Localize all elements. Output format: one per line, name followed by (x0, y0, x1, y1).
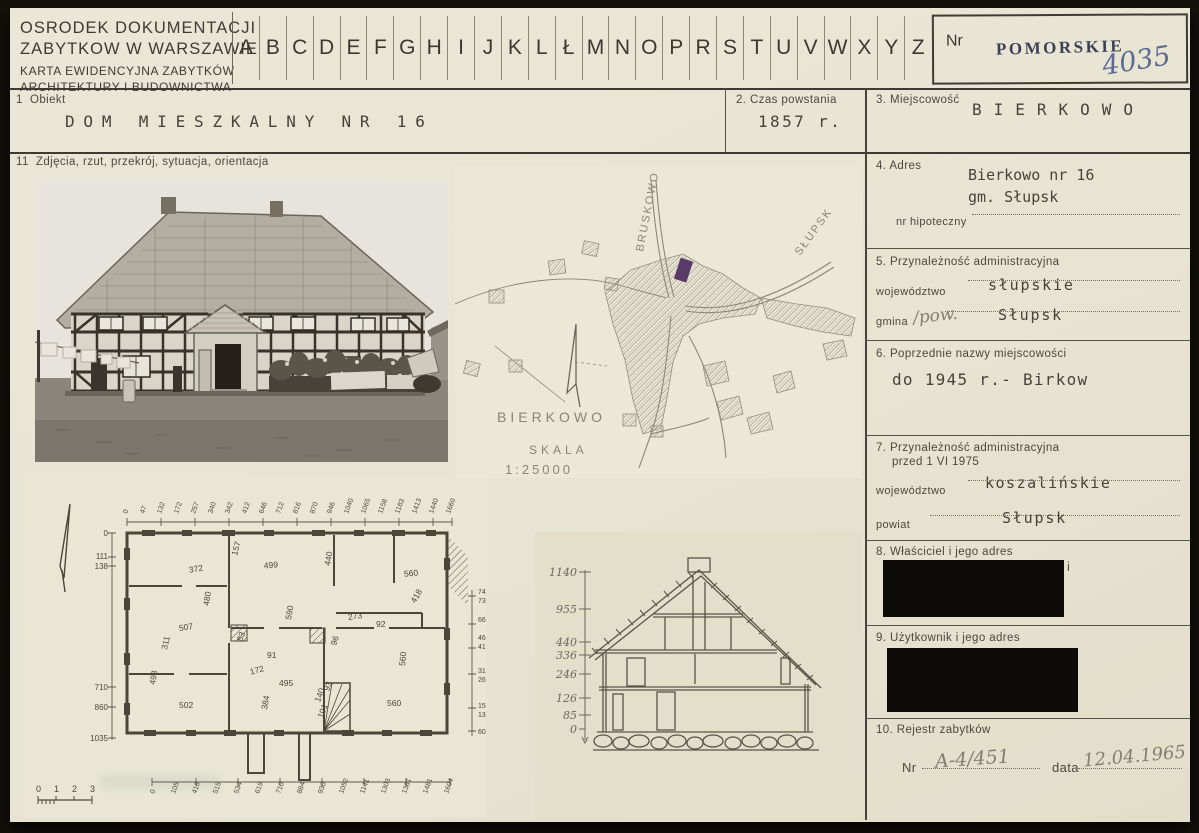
field4-label: 4. Adres (876, 160, 921, 172)
plan-right-dim: 416 (478, 644, 486, 651)
svg-text:955: 955 (556, 603, 577, 616)
alphabet-cell: Z (905, 16, 931, 80)
field5-label: 5. Przynależność administracyjna (876, 256, 1059, 268)
plan-right-dim: 736 (478, 598, 486, 605)
evidence-card: OSRODEK DOKUMENTACJI ZABYTKOW W WARSZAWI… (10, 8, 1190, 822)
alphabet-cell: G (394, 16, 421, 80)
alphabet-cell: O (636, 16, 663, 80)
alphabet-cell: N (609, 16, 636, 80)
field6-value: do 1945 r.- Birkow (892, 370, 1088, 389)
field8-redaction-box (883, 560, 1064, 617)
alphabet-cell: L (529, 16, 556, 80)
card-type-line-2: ARCHITEKTURY I BUDOWNICTWA (20, 79, 258, 95)
org-header: OSRODEK DOKUMENTACJI ZABYTKOW W WARSZAWI… (20, 18, 258, 95)
svg-text:480: 480 (201, 591, 213, 607)
field8-label: 8. Właściciel i jego adres (876, 546, 1013, 558)
photo-house (35, 180, 448, 462)
field10-nr-label: Nr (902, 760, 917, 775)
field10-date-value-handwritten: 12.04.1965 (1082, 742, 1187, 772)
plan-right-dim: 668 (478, 617, 486, 624)
field5-row2-handwritten: /pow. (912, 304, 959, 329)
plan-left-dim: 0 (104, 529, 109, 538)
field5-row1-value: słupskie (988, 276, 1075, 294)
alphabet-cell: Ł (556, 16, 583, 80)
org-line-2: ZABYTKOW W WARSZAWIE (20, 39, 258, 60)
field9-label: 9. Użytkownik i jego adres (876, 632, 1020, 644)
map-village-label: BIERKOWO (497, 409, 606, 425)
field8-remnant-text: i (1067, 559, 1070, 574)
svg-text:560: 560 (397, 651, 408, 666)
svg-text:0: 0 (36, 784, 41, 794)
alphabet-cell: H (421, 16, 448, 80)
situation-map: BRUSKOWO SŁUPSK BIERKOWO SKALA 1:25000 (455, 166, 862, 478)
svg-text:85: 85 (563, 709, 577, 722)
alphabet-cell: A (233, 16, 260, 80)
svg-text:560: 560 (387, 698, 401, 708)
alphabet-cell: W (825, 16, 852, 80)
field9-redaction-box (887, 648, 1078, 712)
field4-value-line2: gm. Słupsk (968, 188, 1058, 206)
alphabet-cell: R (690, 16, 717, 80)
alphabet-cell: X (851, 16, 878, 80)
alphabet-cell: P (663, 16, 690, 80)
plan-right-dim: 154 (478, 703, 486, 710)
svg-text:92: 92 (376, 619, 386, 629)
field1-label: 1 Obiekt (16, 94, 66, 106)
field7-label-line1: 7. Przynależność administracyjna (876, 442, 1059, 454)
svg-text:0: 0 (570, 723, 577, 736)
svg-text:2: 2 (72, 784, 77, 794)
field7-row2-value: Słupsk (1002, 509, 1067, 527)
alphabet-cell: I (448, 16, 475, 80)
svg-text:1140: 1140 (549, 566, 577, 579)
alphabet-cell: M (583, 16, 610, 80)
svg-text:336: 336 (556, 649, 577, 662)
alphabet-cell: E (341, 16, 368, 80)
card-type-line-1: KARTA EWIDENCYJNA ZABYTKÓW (20, 63, 258, 79)
field1-value: DOM MIESZKALNY NR 16 (65, 112, 434, 131)
field7-row1-label: województwo (876, 485, 946, 497)
plan-chimney-2 (310, 628, 325, 643)
alphabet-cell: J (475, 16, 502, 80)
plan-right-dim: 132 (478, 712, 486, 719)
svg-text:3: 3 (90, 784, 95, 794)
floor-plan: 0 111 138 710 860 1035 741 736 668 468 4… (24, 478, 486, 818)
svg-text:499: 499 (263, 559, 278, 570)
door-opening (215, 344, 241, 392)
field2-value: 1857 r. (758, 112, 842, 131)
plan-left-dim: 710 (95, 683, 109, 692)
alphabet-cell: Y (878, 16, 905, 80)
svg-text:91: 91 (267, 650, 277, 660)
scanned-card-page: { "header": { "org_line1": "OSRODEK DOKU… (0, 0, 1199, 833)
svg-text:1: 1 (54, 784, 59, 794)
map-scale-value: 1:25000 (505, 462, 573, 477)
alphabet-cell: S (717, 16, 744, 80)
plan-left-dim: 1035 (90, 734, 108, 743)
svg-text:246: 246 (555, 668, 577, 681)
svg-text:440: 440 (555, 636, 577, 649)
field5-row2-value: Słupsk (998, 306, 1063, 324)
field5-row1-label: województwo (876, 286, 946, 298)
plan-left-dim: 860 (95, 703, 109, 712)
svg-text:495: 495 (279, 678, 293, 688)
plan-right-dim: 741 (478, 589, 486, 596)
field6-label: 6. Poprzednie nazwy miejscowości (876, 348, 1067, 360)
field5-row2-label: gmina (876, 316, 908, 328)
field7-label-line2: przed 1 VI 1975 (892, 456, 979, 468)
alphabet-cell: B (260, 16, 287, 80)
nr-label: Nr (946, 33, 963, 51)
field2-label: 2. Czas powstania (736, 94, 837, 106)
plan-right-dim: 468 (478, 635, 486, 642)
field4-value-line1: Bierkowo nr 16 (968, 166, 1094, 184)
ink-smudge (100, 774, 220, 790)
field7-row2-label: powiat (876, 519, 910, 531)
svg-text:126: 126 (556, 692, 577, 705)
field10-label: 10. Rejestr zabytków (876, 724, 991, 736)
plan-right-dim: 312 (478, 668, 486, 675)
plan-right-dim: 60 (478, 729, 486, 736)
field4-sub-label: nr hipoteczny (896, 216, 967, 228)
svg-text:273: 273 (347, 610, 363, 622)
alphabet-cell: K (502, 16, 529, 80)
alphabet-cell: T (744, 16, 771, 80)
alphabet-cell: V (798, 16, 825, 80)
registry-number-box: Nr POMORSKIE 4035 (932, 13, 1188, 84)
plan-left-dim: 138 (95, 562, 109, 571)
svg-text:507: 507 (178, 621, 194, 633)
plan-left-dim: 111 (96, 552, 109, 561)
org-line-1: OSRODEK DOKUMENTACJI (20, 18, 258, 39)
field11-label: 11 Zdjęcia, rzut, przekrój, sytuacja, or… (16, 156, 269, 168)
alphabet-cell: D (314, 16, 341, 80)
svg-text:502: 502 (179, 700, 193, 710)
chimney-right (270, 201, 283, 217)
chimney-left (161, 197, 176, 214)
svg-text:560: 560 (404, 567, 419, 578)
field7-row1-value: koszalińskie (985, 474, 1111, 492)
plan-right-dim: 268 (478, 677, 486, 684)
alphabet-index-strip: ABCDEFGHIJKLŁMNOPRSTUVWXYZ (232, 12, 931, 84)
cross-section: 1140 955 440 336 246 126 85 0 (535, 532, 862, 820)
map-scale-word: SKALA (529, 443, 588, 457)
alphabet-cell: U (771, 16, 798, 80)
field3-label: 3. Miejscowość (876, 94, 960, 106)
field10-date-label: data (1052, 760, 1079, 775)
alphabet-cell: F (367, 16, 394, 80)
field3-value: BIERKOWO (972, 100, 1145, 119)
alphabet-cell: C (287, 16, 314, 80)
